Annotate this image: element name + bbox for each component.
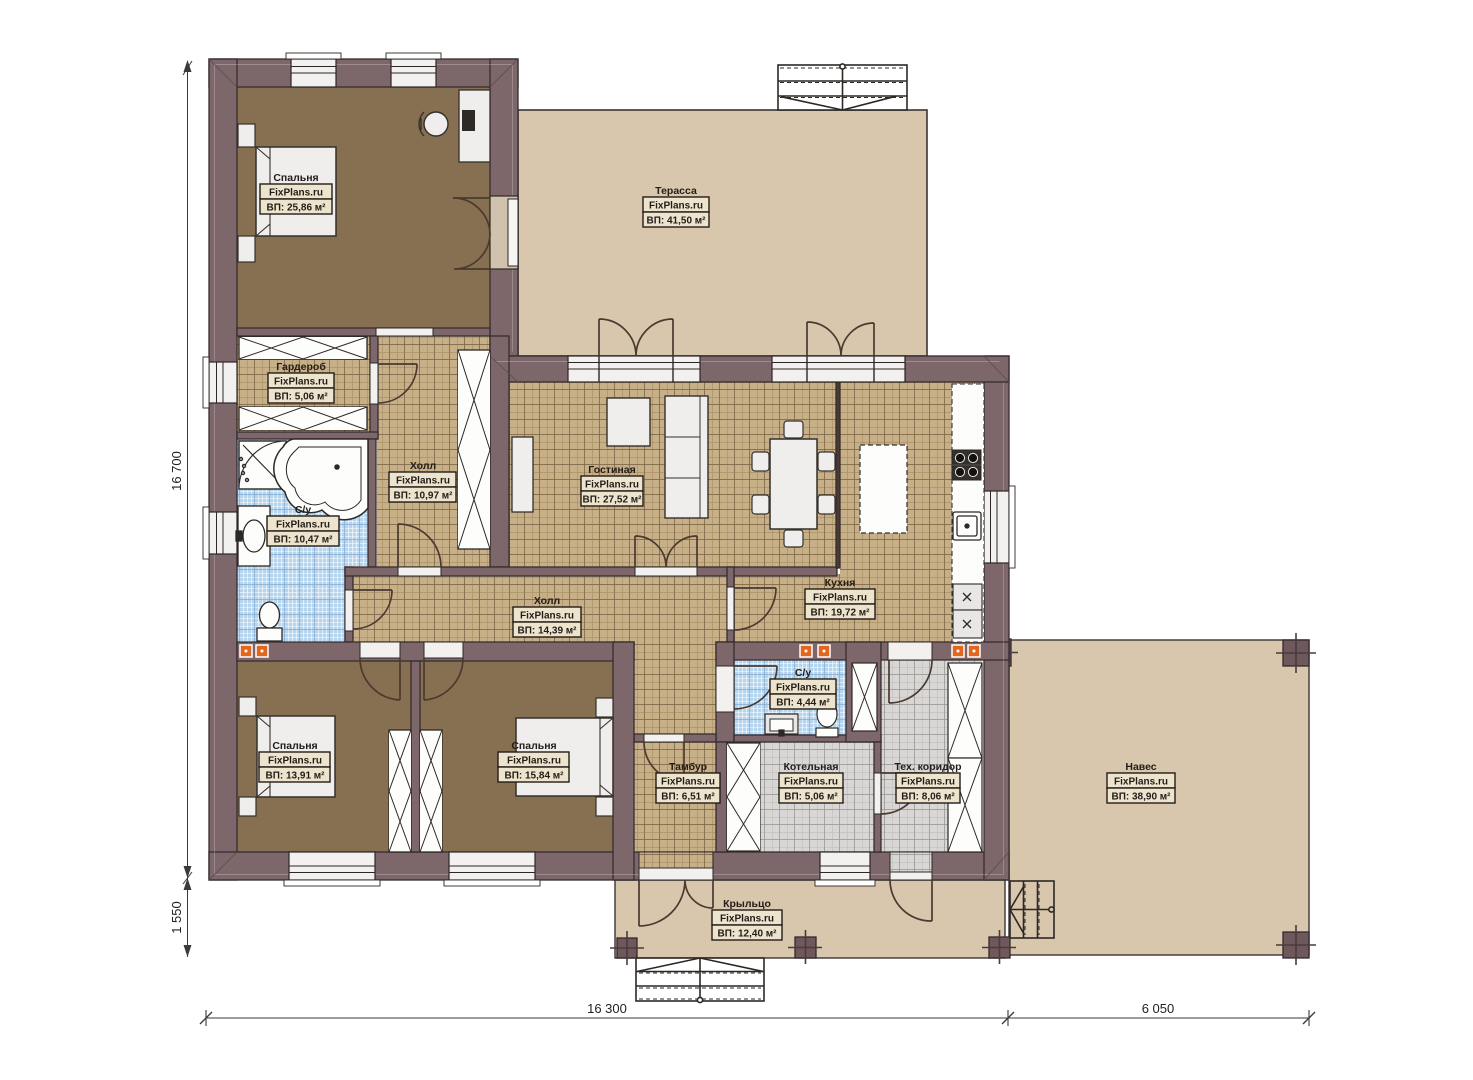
svg-text:Спальня: Спальня bbox=[272, 740, 317, 752]
svg-text:ВП: 14,39 м²: ВП: 14,39 м² bbox=[517, 626, 577, 637]
svg-text:FixPlans.ru: FixPlans.ru bbox=[396, 476, 450, 487]
svg-text:ВП: 15,84 м²: ВП: 15,84 м² bbox=[504, 771, 564, 782]
svg-text:ВП: 8,06 м²: ВП: 8,06 м² bbox=[901, 792, 955, 803]
svg-text:FixPlans.ru: FixPlans.ru bbox=[661, 777, 715, 788]
svg-text:ВП: 41,50 м²: ВП: 41,50 м² bbox=[646, 216, 706, 227]
svg-text:Тамбур: Тамбур bbox=[669, 761, 707, 773]
svg-text:FixPlans.ru: FixPlans.ru bbox=[901, 777, 955, 788]
svg-text:ВП: 5,06 м²: ВП: 5,06 м² bbox=[274, 392, 328, 403]
svg-text:FixPlans.ru: FixPlans.ru bbox=[520, 611, 574, 622]
svg-text:ВП: 27,52 м²: ВП: 27,52 м² bbox=[582, 495, 642, 506]
svg-text:ВП: 4,44 м²: ВП: 4,44 м² bbox=[776, 698, 830, 709]
svg-text:Крыльцо: Крыльцо bbox=[723, 898, 771, 910]
svg-text:FixPlans.ru: FixPlans.ru bbox=[507, 756, 561, 767]
svg-text:FixPlans.ru: FixPlans.ru bbox=[776, 683, 830, 694]
svg-text:16 700: 16 700 bbox=[169, 451, 184, 491]
svg-text:ВП: 5,06 м²: ВП: 5,06 м² bbox=[784, 792, 838, 803]
svg-text:Гостиная: Гостиная bbox=[588, 464, 635, 476]
svg-text:ВП: 13,91 м²: ВП: 13,91 м² bbox=[265, 771, 325, 782]
svg-text:Тех. коридор: Тех. коридор bbox=[894, 761, 961, 773]
svg-text:FixPlans.ru: FixPlans.ru bbox=[720, 914, 774, 925]
svg-text:Навес: Навес bbox=[1125, 761, 1156, 773]
svg-text:С/у: С/у bbox=[795, 667, 812, 679]
svg-text:FixPlans.ru: FixPlans.ru bbox=[274, 377, 328, 388]
svg-text:ВП: 10,47 м²: ВП: 10,47 м² bbox=[273, 535, 333, 546]
svg-text:FixPlans.ru: FixPlans.ru bbox=[585, 480, 639, 491]
svg-text:Холл: Холл bbox=[534, 595, 560, 607]
svg-text:1 550: 1 550 bbox=[169, 901, 184, 934]
svg-text:Кухня: Кухня bbox=[825, 577, 856, 589]
svg-text:ВП: 25,86 м²: ВП: 25,86 м² bbox=[266, 203, 326, 214]
svg-text:16 300: 16 300 bbox=[587, 1001, 627, 1016]
svg-text:FixPlans.ru: FixPlans.ru bbox=[813, 593, 867, 604]
svg-text:FixPlans.ru: FixPlans.ru bbox=[784, 777, 838, 788]
svg-text:ВП: 10,97 м²: ВП: 10,97 м² bbox=[393, 491, 453, 502]
svg-text:FixPlans.ru: FixPlans.ru bbox=[1114, 777, 1168, 788]
svg-text:ВП: 12,40 м²: ВП: 12,40 м² bbox=[717, 929, 777, 940]
svg-text:С/у: С/у bbox=[295, 504, 312, 516]
svg-text:FixPlans.ru: FixPlans.ru bbox=[276, 520, 330, 531]
svg-text:Спальня: Спальня bbox=[273, 172, 318, 184]
svg-text:6 050: 6 050 bbox=[1142, 1001, 1175, 1016]
svg-text:Котельная: Котельная bbox=[784, 761, 839, 773]
svg-text:Холл: Холл bbox=[410, 460, 436, 472]
svg-text:Терасса: Терасса bbox=[655, 185, 697, 197]
svg-text:ВП: 19,72 м²: ВП: 19,72 м² bbox=[810, 608, 870, 619]
svg-text:ВП: 38,90 м²: ВП: 38,90 м² bbox=[1111, 792, 1171, 803]
svg-text:FixPlans.ru: FixPlans.ru bbox=[268, 756, 322, 767]
svg-text:Спальня: Спальня bbox=[511, 740, 556, 752]
svg-text:Гардероб: Гардероб bbox=[276, 361, 326, 373]
svg-text:FixPlans.ru: FixPlans.ru bbox=[649, 201, 703, 212]
svg-text:ВП: 6,51 м²: ВП: 6,51 м² bbox=[661, 792, 715, 803]
svg-text:FixPlans.ru: FixPlans.ru bbox=[269, 188, 323, 199]
